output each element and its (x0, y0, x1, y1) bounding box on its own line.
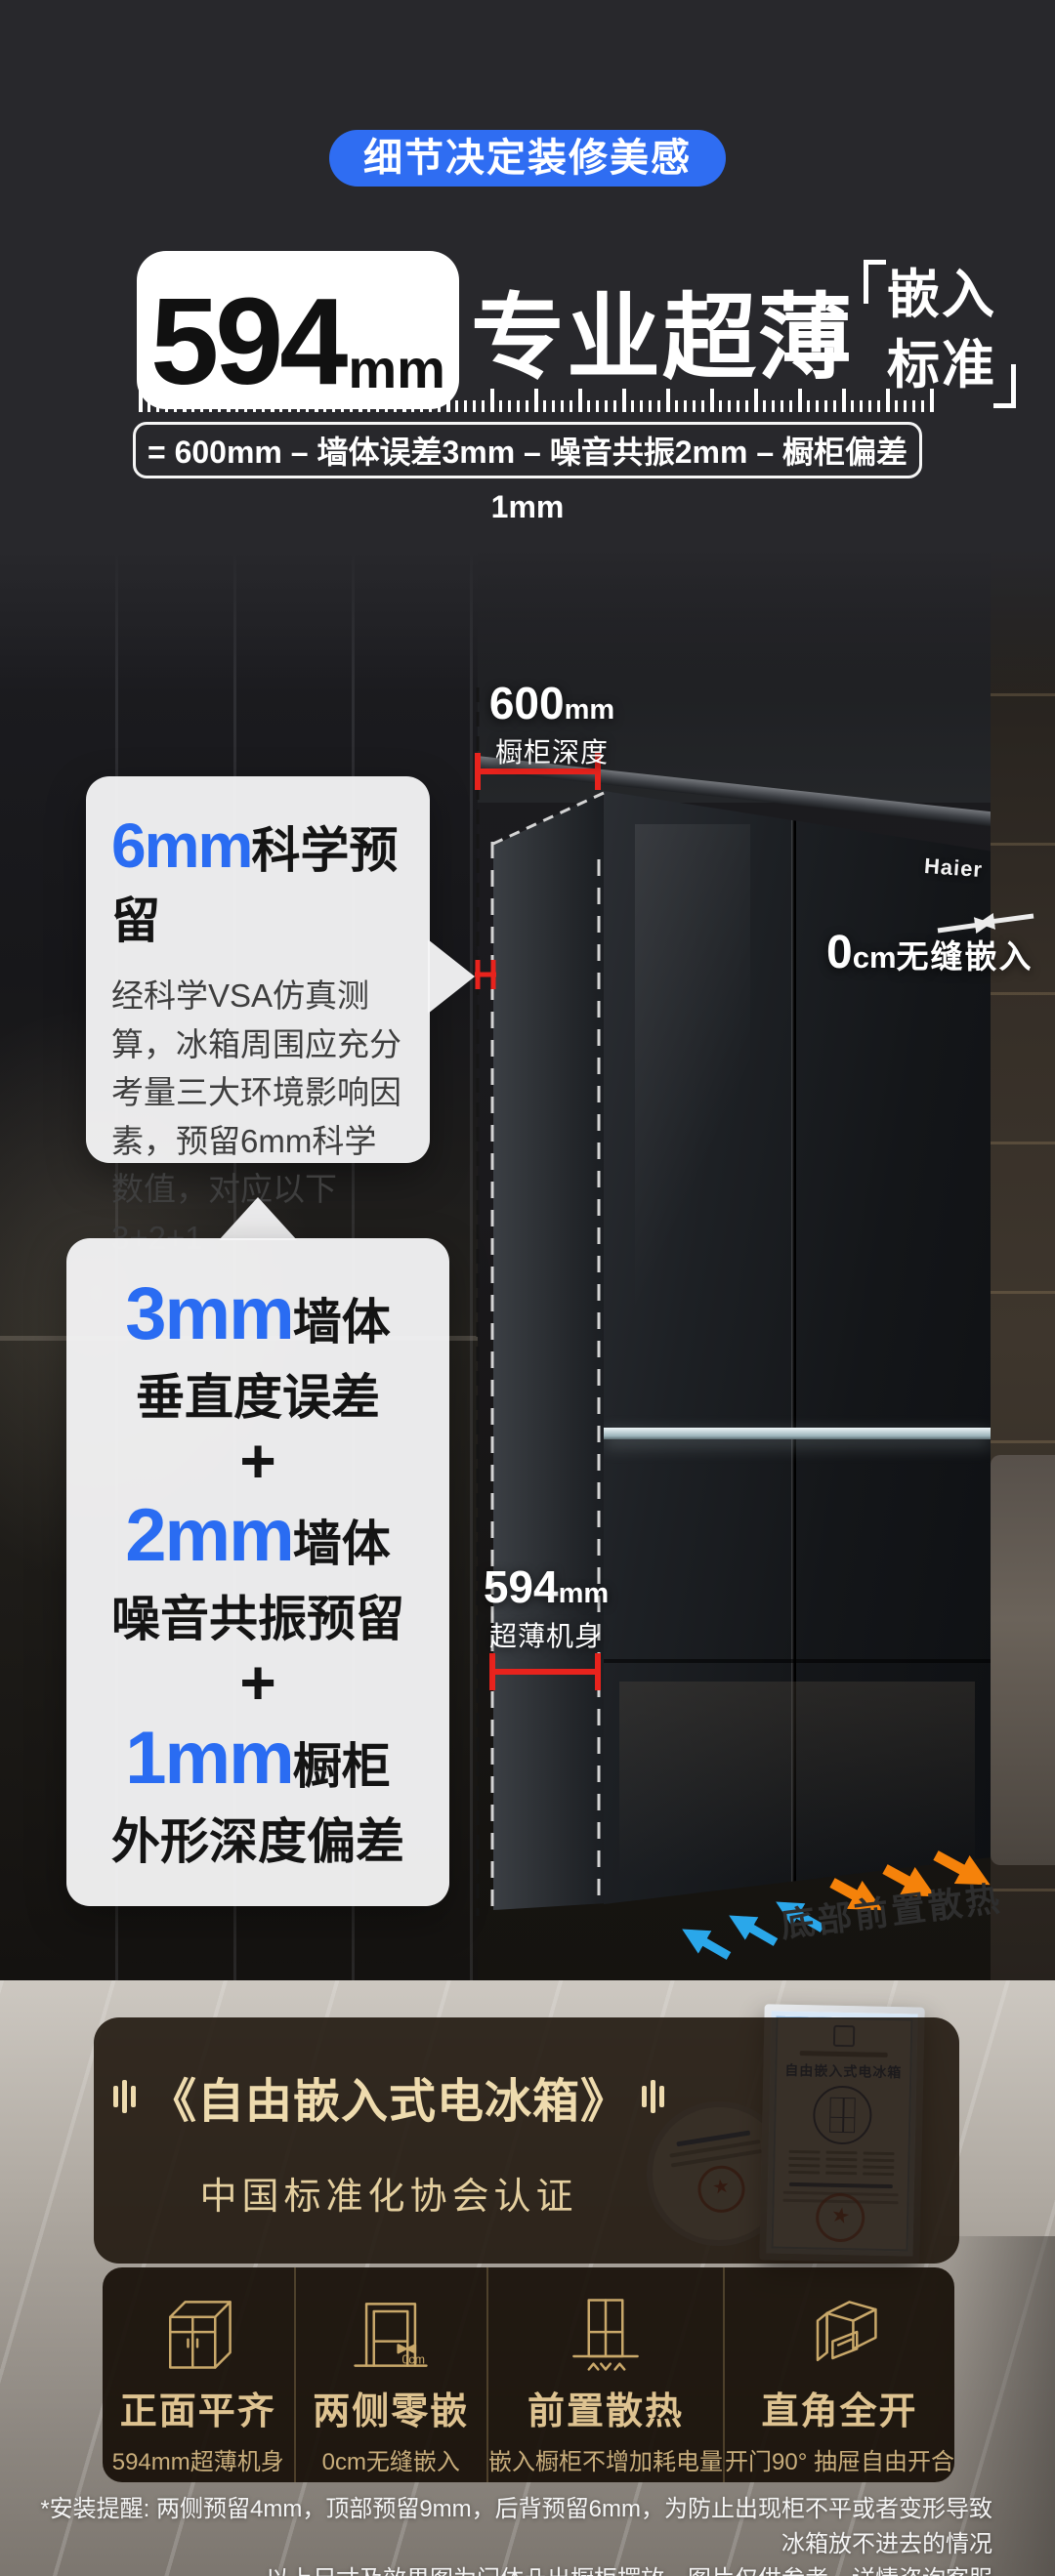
callout-6mm-pointer-icon (428, 939, 475, 1014)
zero-gap-number: 0 (826, 927, 853, 978)
breakdown-3mm-number: 3mm (125, 1272, 292, 1355)
fridge-sheen (635, 824, 751, 1403)
front-flush-icon (153, 2289, 243, 2379)
breakdown-3mm-suffix: 墙体 (293, 1295, 391, 1350)
footnote-line2: 以上尺寸及效果图为门体凸出橱柜摆放，图片仅供参考，详情咨询客服 (35, 2562, 992, 2576)
breakdown-2mm-number: 2mm (125, 1494, 292, 1577)
zero-gap-icon: 0cm (346, 2289, 436, 2379)
zero-gap-caption: 无缝嵌入 (897, 938, 1034, 975)
callout-6mm: 6mm科学预留 经科学VSA仿真测算，冰箱周围应充分考量三大环境影响因素，预留6… (86, 776, 430, 1163)
callout-6mm-number: 6mm (111, 810, 251, 881)
headline-unit: mm (348, 345, 445, 394)
headline-main: 专业超薄 (471, 262, 854, 397)
promo-page: 细节决定装修美感 594 mm 专业超薄 嵌入 标准 = 600mm – 墙体误… (0, 0, 1055, 2576)
feature-front-flush: 正面平齐 594mm超薄机身 (103, 2267, 294, 2482)
breakdown-item-1mm: 1mm橱柜 外形深度偏差 (111, 1716, 404, 1873)
breakdown-1mm-number: 1mm (125, 1717, 292, 1800)
svg-text:0cm: 0cm (402, 2353, 426, 2367)
cabinet-depth-number: 600 (489, 678, 565, 728)
breakdown-pointer-icon (219, 1197, 297, 1240)
certification-title: 《自由嵌入式电冰箱》 (149, 2062, 628, 2131)
feature-title: 前置散热 (527, 2381, 684, 2434)
feature-title: 直角全开 (762, 2381, 918, 2434)
fridge-side-panel (493, 791, 605, 1910)
cabinet-depth-label: 600mm 橱柜深度 (469, 677, 635, 770)
breakdown-1mm-suffix: 橱柜 (293, 1739, 391, 1794)
breakdown-3mm-detail: 垂直度误差 (125, 1358, 390, 1429)
headline-number: 594 (150, 289, 344, 394)
zero-gap-unit: cm (853, 940, 897, 975)
zero-gap-label: 0cm无缝嵌入 (826, 926, 1041, 979)
plus-sign: + (239, 1436, 275, 1486)
formula-box: = 600mm – 墙体误差3mm – 噪音共振2mm – 橱柜偏差1mm (133, 422, 922, 478)
plus-sign: + (239, 1658, 275, 1708)
feature-subtitle: 594mm超薄机身 (112, 2442, 284, 2476)
body-depth-label: 594mm 超薄机身 (463, 1560, 629, 1654)
headline-number-box: 594 mm (137, 251, 459, 409)
fridge-reflection (619, 1682, 975, 1882)
certification-subtitle: 中国标准化协会认证 (115, 2166, 662, 2220)
front-heat-icon (561, 2289, 651, 2379)
body-depth-unit: mm (559, 1578, 610, 1609)
footnote-line1: *安装提醒: 两侧预留4mm，顶部预留9mm，后背预留6mm，为防止出现柜不平或… (35, 2492, 992, 2562)
bracket-close-icon (993, 364, 1016, 408)
breakdown-2mm-suffix: 墙体 (293, 1517, 391, 1571)
laurel-right-icon (642, 2080, 664, 2113)
fridge-light-strip (604, 1428, 991, 1439)
cabinet-depth-caption: 橱柜深度 (469, 731, 635, 770)
ruler-scale-icon (139, 389, 936, 412)
bracket-open-icon (864, 260, 886, 304)
feature-front-heat: 前置散热 嵌入橱柜不增加耗电量 (486, 2267, 723, 2482)
feature-subtitle: 嵌入橱柜不增加耗电量 (488, 2442, 723, 2476)
feature-title: 两侧零嵌 (313, 2381, 469, 2434)
feature-zero-gap: 0cm 两侧零嵌 0cm无缝嵌入 (294, 2267, 487, 2482)
breakdown-2mm-detail: 噪音共振预留 (111, 1580, 404, 1650)
feature-subtitle: 0cm无缝嵌入 (322, 2442, 460, 2476)
certification-panel (94, 2017, 959, 2264)
headline-bracket: 嵌入 标准 (864, 260, 1016, 408)
body-depth-number: 594 (484, 1561, 559, 1612)
features-panel: 正面平齐 594mm超薄机身 0cm 两侧零嵌 0cm无缝嵌入 (103, 2267, 954, 2482)
right-angle-open-icon (795, 2289, 885, 2379)
body-depth-caption: 超薄机身 (463, 1615, 629, 1654)
photo-top-fade (0, 547, 1055, 693)
sofa (991, 1455, 1055, 1865)
certification-title-row: 《自由嵌入式电冰箱》 (115, 2062, 662, 2131)
install-footnote: *安装提醒: 两侧预留4mm，顶部预留9mm，后背预留6mm，为防止出现柜不平或… (35, 2492, 992, 2576)
fridge-drawer-seam (604, 1659, 991, 1663)
breakdown-1mm-detail: 外形深度偏差 (111, 1803, 404, 1873)
header-pill: 细节决定装修美感 (329, 130, 726, 187)
feature-subtitle: 开门90° 抽屉自由开合 (725, 2442, 954, 2476)
breakdown-callout: 3mm墙体 垂直度误差 + 2mm墙体 噪音共振预留 + 1mm橱柜 外形深度偏… (66, 1238, 449, 1906)
laurel-left-icon (113, 2080, 136, 2113)
breakdown-item-2mm: 2mm墙体 噪音共振预留 (111, 1493, 404, 1650)
breakdown-item-3mm: 3mm墙体 垂直度误差 (125, 1271, 390, 1429)
feature-title: 正面平齐 (120, 2381, 276, 2434)
cabinet-depth-unit: mm (565, 694, 615, 726)
brand-logo: Haier (923, 853, 984, 883)
bracket-line1: 嵌入 (864, 260, 1016, 330)
feature-right-angle-open: 直角全开 开门90° 抽屉自由开合 (723, 2267, 954, 2482)
